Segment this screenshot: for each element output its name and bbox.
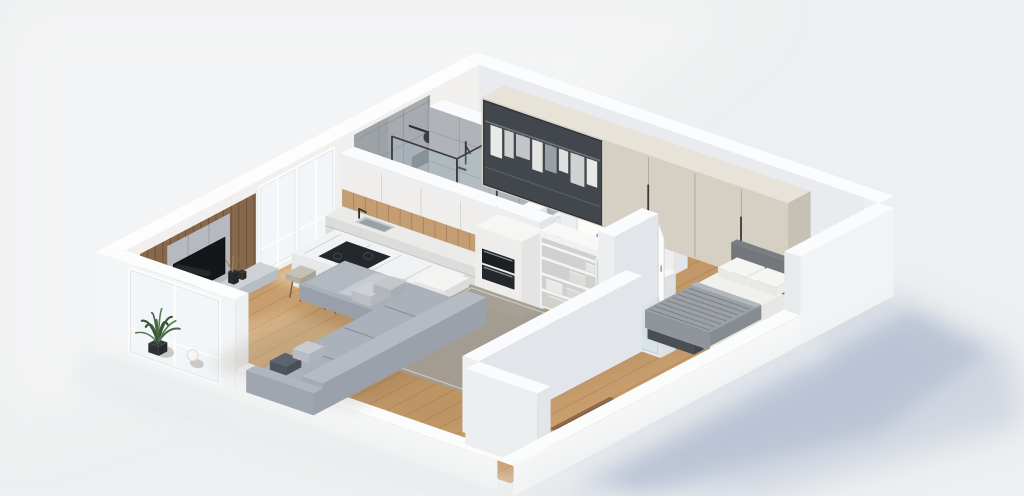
south-wall-step <box>784 251 800 315</box>
isometric-apartment-svg <box>0 0 1024 496</box>
console-vase-2 <box>238 270 247 281</box>
console-vase <box>228 269 239 285</box>
bedroom-door <box>658 222 664 314</box>
floor-plan-render: Isometric 3D cutaway render of a one-bed… <box>0 0 1024 496</box>
